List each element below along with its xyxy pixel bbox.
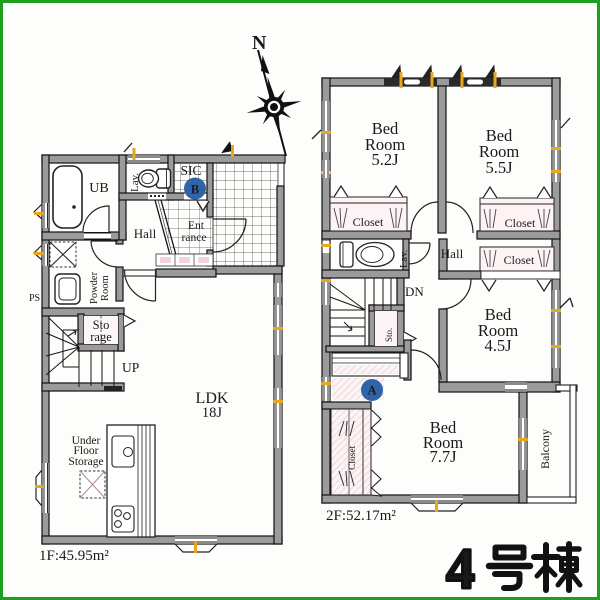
svg-text:UP: UP	[122, 360, 139, 375]
svg-text:Closet: Closet	[504, 253, 535, 267]
svg-text:4: 4	[446, 536, 475, 600]
svg-text:rance: rance	[182, 232, 207, 244]
svg-text:A: A	[367, 384, 376, 398]
svg-text:7.7J: 7.7J	[429, 447, 457, 466]
svg-text:N: N	[252, 32, 267, 54]
svg-text:SIC: SIC	[180, 163, 201, 178]
svg-text:Ent: Ent	[188, 220, 205, 232]
svg-text:2F:52.17m²: 2F:52.17m²	[326, 508, 396, 524]
svg-text:18J: 18J	[202, 405, 223, 421]
svg-text:Powder: Powder	[89, 271, 100, 304]
svg-text:Closet: Closet	[348, 445, 358, 470]
svg-text:Closet: Closet	[505, 216, 536, 230]
svg-text:rage: rage	[90, 330, 112, 344]
svg-text:DN: DN	[405, 284, 424, 299]
svg-text:1F:45.95m²: 1F:45.95m²	[39, 548, 109, 564]
svg-text:Lav.: Lav.	[129, 173, 141, 192]
svg-text:Storage: Storage	[68, 456, 103, 468]
svg-text:5.5J: 5.5J	[485, 158, 513, 177]
svg-text:B: B	[191, 183, 199, 197]
svg-text:5.2J: 5.2J	[371, 150, 399, 169]
svg-text:4.5J: 4.5J	[484, 336, 512, 355]
svg-text:Room: Room	[100, 275, 111, 301]
svg-text:Sto.: Sto.	[384, 328, 394, 342]
svg-text:Hall: Hall	[441, 246, 464, 261]
svg-text:PS: PS	[29, 293, 40, 304]
svg-text:Hall: Hall	[134, 226, 157, 241]
svg-text:UB: UB	[89, 181, 108, 196]
svg-text:Closet: Closet	[353, 215, 384, 229]
svg-text:Balcony: Balcony	[538, 429, 552, 469]
svg-text:Lav.: Lav.	[399, 250, 410, 268]
